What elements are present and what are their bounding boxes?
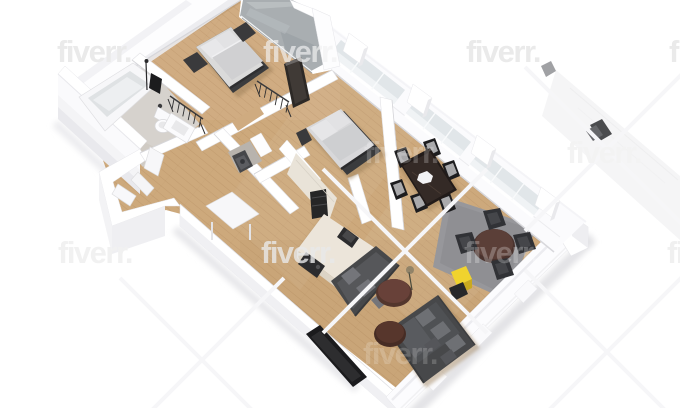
svg-text:fiverr.: fiverr. [464, 235, 538, 270]
svg-text:fiverr.: fiverr. [58, 235, 132, 270]
svg-text:fiverr.: fiverr. [567, 135, 641, 170]
svg-text:fiverr.: fiverr. [669, 34, 680, 69]
svg-text:fiverr.: fiverr. [364, 135, 438, 170]
svg-text:fiverr.: fiverr. [57, 34, 131, 69]
svg-text:fiverr.: fiverr. [261, 235, 335, 270]
svg-text:fiverr.: fiverr. [667, 235, 680, 270]
svg-text:fiverr.: fiverr. [466, 34, 540, 69]
svg-text:fiverr.: fiverr. [363, 336, 437, 371]
svg-text:fiverr.: fiverr. [263, 34, 337, 69]
